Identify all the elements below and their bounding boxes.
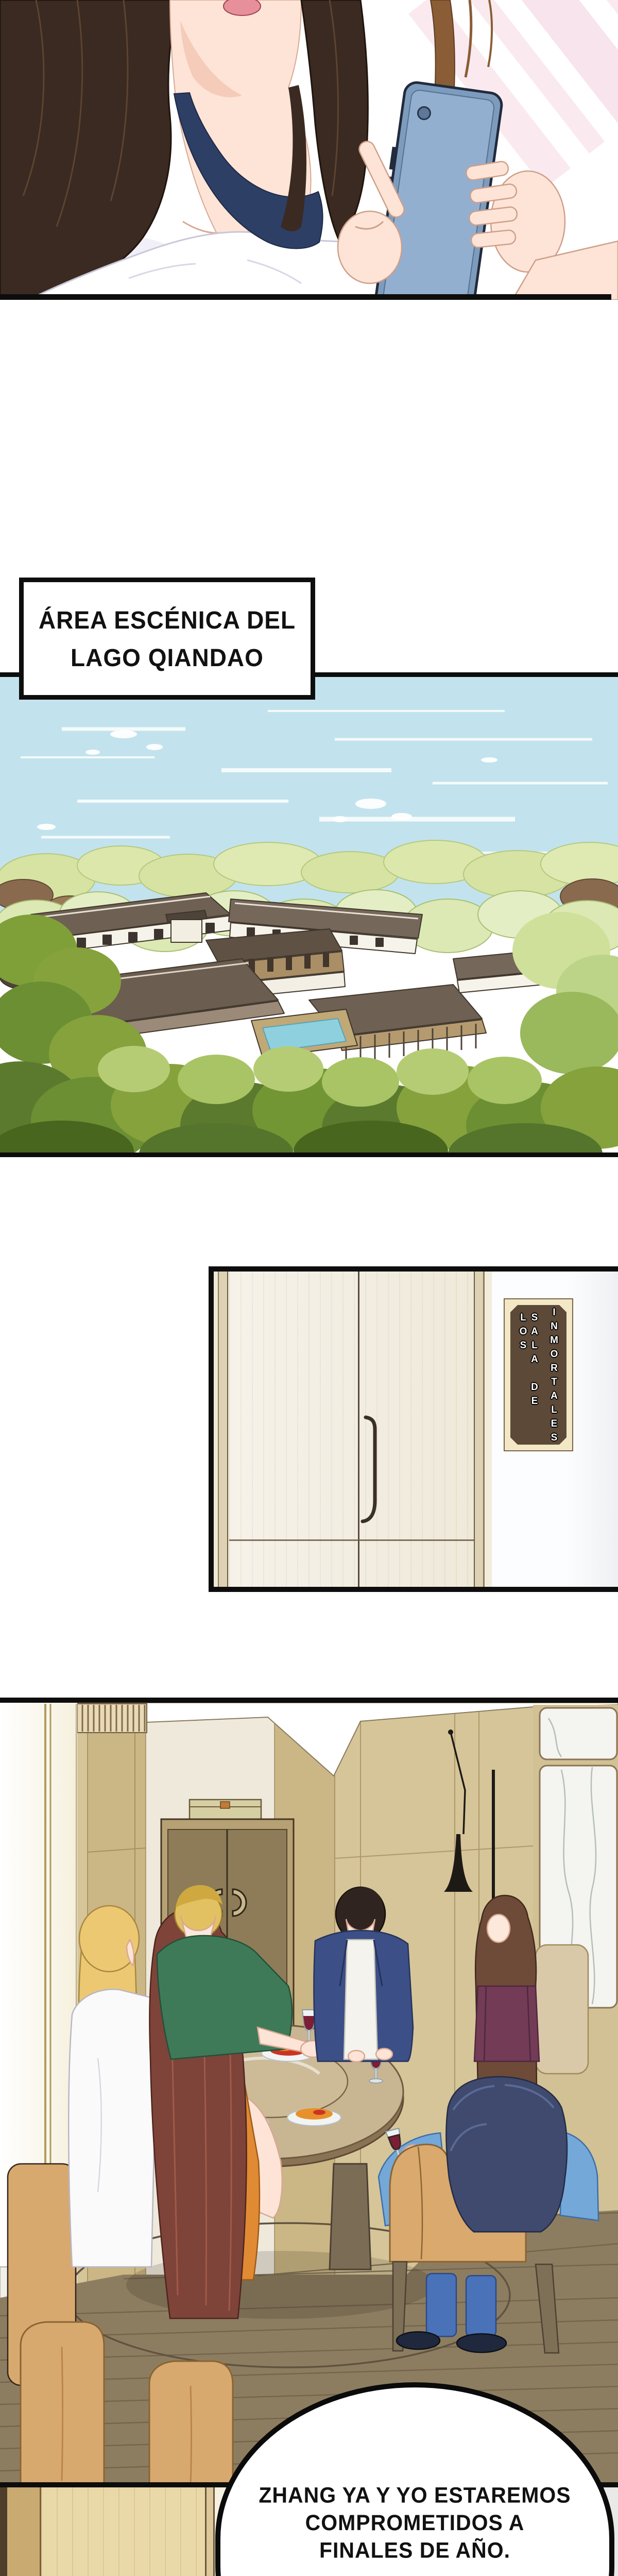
door-jamb [0,2487,7,2576]
door-frame-left [214,1272,229,1587]
hall-sign-plaque: SALA DE LOS INMORTALES [510,1305,566,1445]
panel-border-top [0,1698,618,1703]
caption-box: ÁREA ESCÉNICA DEL LAGO QIANDAO [19,578,315,700]
panel-border [0,294,611,300]
door-handle-icon [359,1414,380,1524]
panel-phone-closeup [0,0,618,300]
resort-art [0,672,618,1157]
door-leaves [229,1272,474,1587]
door-horizontal-seam [229,1539,474,1541]
dining-room-art [0,1698,618,2487]
hall-sign: SALA DE LOS INMORTALES [504,1298,573,1451]
comic-page: ÁREA ESCÉNICA DEL LAGO QIANDAO SALA DE L… [0,0,618,2576]
panel-dining-room [0,1698,618,2487]
wood-door [7,2487,41,2576]
chair [536,1945,588,2074]
sign-text-right: INMORTALES [548,1307,560,1445]
table-pedestal [330,2164,371,2269]
caption-text: ÁREA ESCÉNICA DEL LAGO QIANDAO [39,601,296,676]
panel-border-bottom [0,1153,618,1157]
phone-closeup-art [0,0,618,300]
door-scene: SALA DE LOS INMORTALES [214,1272,618,1587]
phone-camera-icon [417,106,431,120]
speech-bubble-text: ZHANG YA Y YO ESTAREMOS COMPROMETIDOS A … [220,2385,609,2564]
door-frame-right [474,1272,492,1587]
wood-paneling [41,2487,205,2576]
sign-text-left: SALA DE LOS [518,1312,540,1445]
speech-bubble: ZHANG YA Y YO ESTAREMOS COMPROMETIDOS A … [215,2382,614,2576]
panel-hall-door: SALA DE LOS INMORTALES [209,1266,618,1592]
ceiling-vent [77,1704,147,1733]
panel-seam [205,2487,215,2576]
panel-lake-resort [0,672,618,1157]
mouth [224,0,261,15]
